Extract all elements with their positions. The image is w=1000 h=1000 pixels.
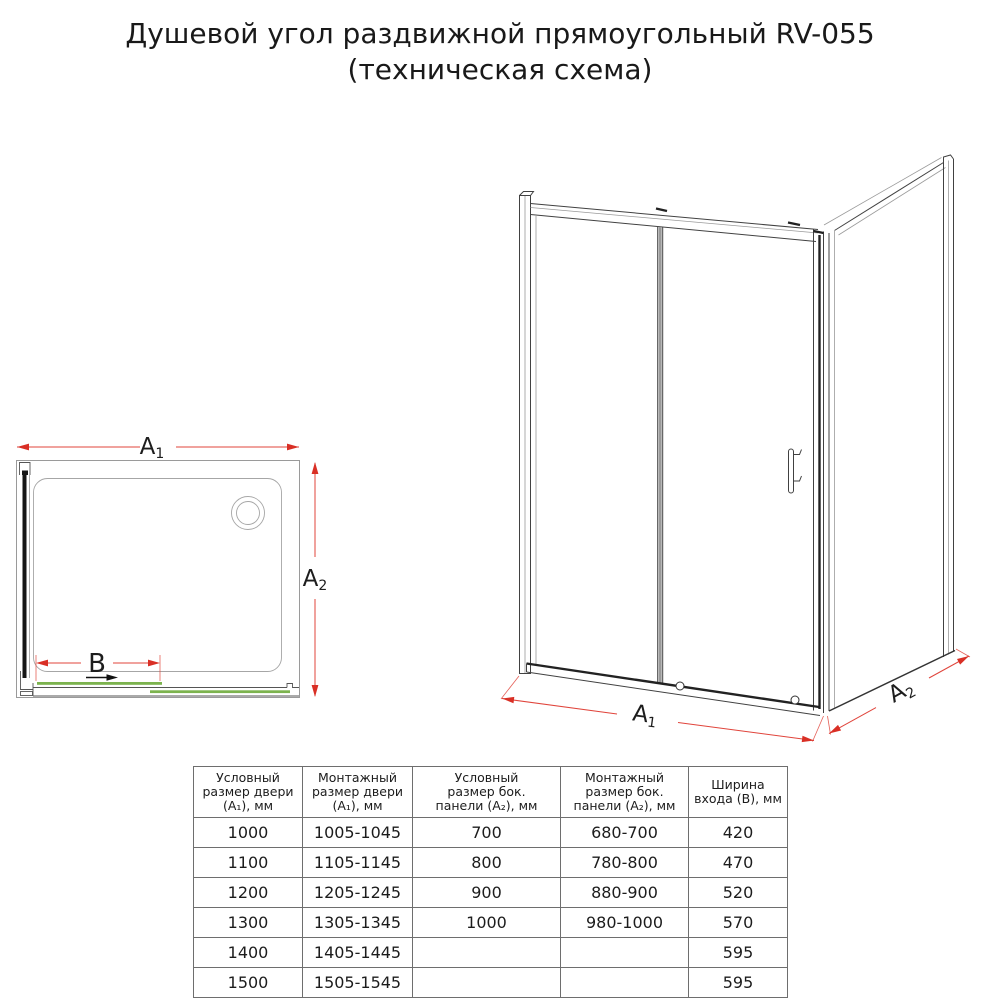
fixed-side-panel <box>23 475 27 678</box>
page-title: Душевой угол раздвижной прямоугольный RV… <box>0 16 1000 88</box>
title-line-2: (техническая схема) <box>0 52 1000 88</box>
title-line-1: Душевой угол раздвижной прямоугольный RV… <box>0 16 1000 52</box>
col-header-door-nominal: Условныйразмер двери(A₁), мм <box>194 767 303 818</box>
col-header-entry-width: Ширинавхода (B), мм <box>689 767 788 818</box>
right-corner-post <box>814 230 824 714</box>
top-view-diagram: A1 A2 B <box>0 420 340 720</box>
dimension-a2-perspective: A2 <box>828 649 971 735</box>
roller-right <box>791 696 799 704</box>
table-header-row: Условныйразмер двери(A₁), мм Монтажныйра… <box>194 767 788 818</box>
wall-profile-block <box>22 471 28 476</box>
side-panel <box>824 155 955 711</box>
top-rail <box>531 204 819 242</box>
table-row: 13001305-13451000980-1000570 <box>194 908 788 938</box>
label-a1-perspective: A1 <box>631 700 659 731</box>
technical-scheme-page: Душевой угол раздвижной прямоугольный RV… <box>0 0 1000 1000</box>
drain-circle-inner <box>237 502 260 525</box>
door-overlap-divider <box>658 227 663 683</box>
dimension-a1-top-view: A1 <box>17 434 299 462</box>
door-handle <box>789 449 802 493</box>
sliding-door-panel <box>37 682 162 685</box>
size-table: Условныйразмер двери(A₁), мм Монтажныйра… <box>193 766 788 998</box>
table-row: 10001005-1045700680-700420 <box>194 818 788 848</box>
hardware-brackets <box>20 463 300 697</box>
table-row: 12001205-1245900880-900520 <box>194 878 788 908</box>
label-b: B <box>88 649 106 679</box>
left-wall-profile <box>520 192 534 674</box>
label-a2: A2 <box>303 566 328 594</box>
perspective-view-diagram: A1 A2 <box>480 140 1000 760</box>
table-row: 11001105-1145800780-800470 <box>194 848 788 878</box>
col-header-side-nominal: Условныйразмер бок.панели (A₂), мм <box>413 767 561 818</box>
label-a1: A1 <box>140 434 165 462</box>
col-header-door-mounting: Монтажныйразмер двери(A₁), мм <box>303 767 413 818</box>
enclosure-outline <box>17 461 300 698</box>
col-header-side-mounting: Монтажныйразмер бок.панели (A₂), мм <box>561 767 689 818</box>
table-row: 15001505-1545595 <box>194 968 788 998</box>
label-a2-perspective: A2 <box>884 674 919 710</box>
dimension-a2-top-view: A2 <box>303 462 328 697</box>
fixed-door-panel <box>150 690 290 693</box>
roller-left <box>676 682 684 690</box>
dimension-b-top-view: B <box>36 649 160 681</box>
table-row: 14001405-1445595 <box>194 938 788 968</box>
